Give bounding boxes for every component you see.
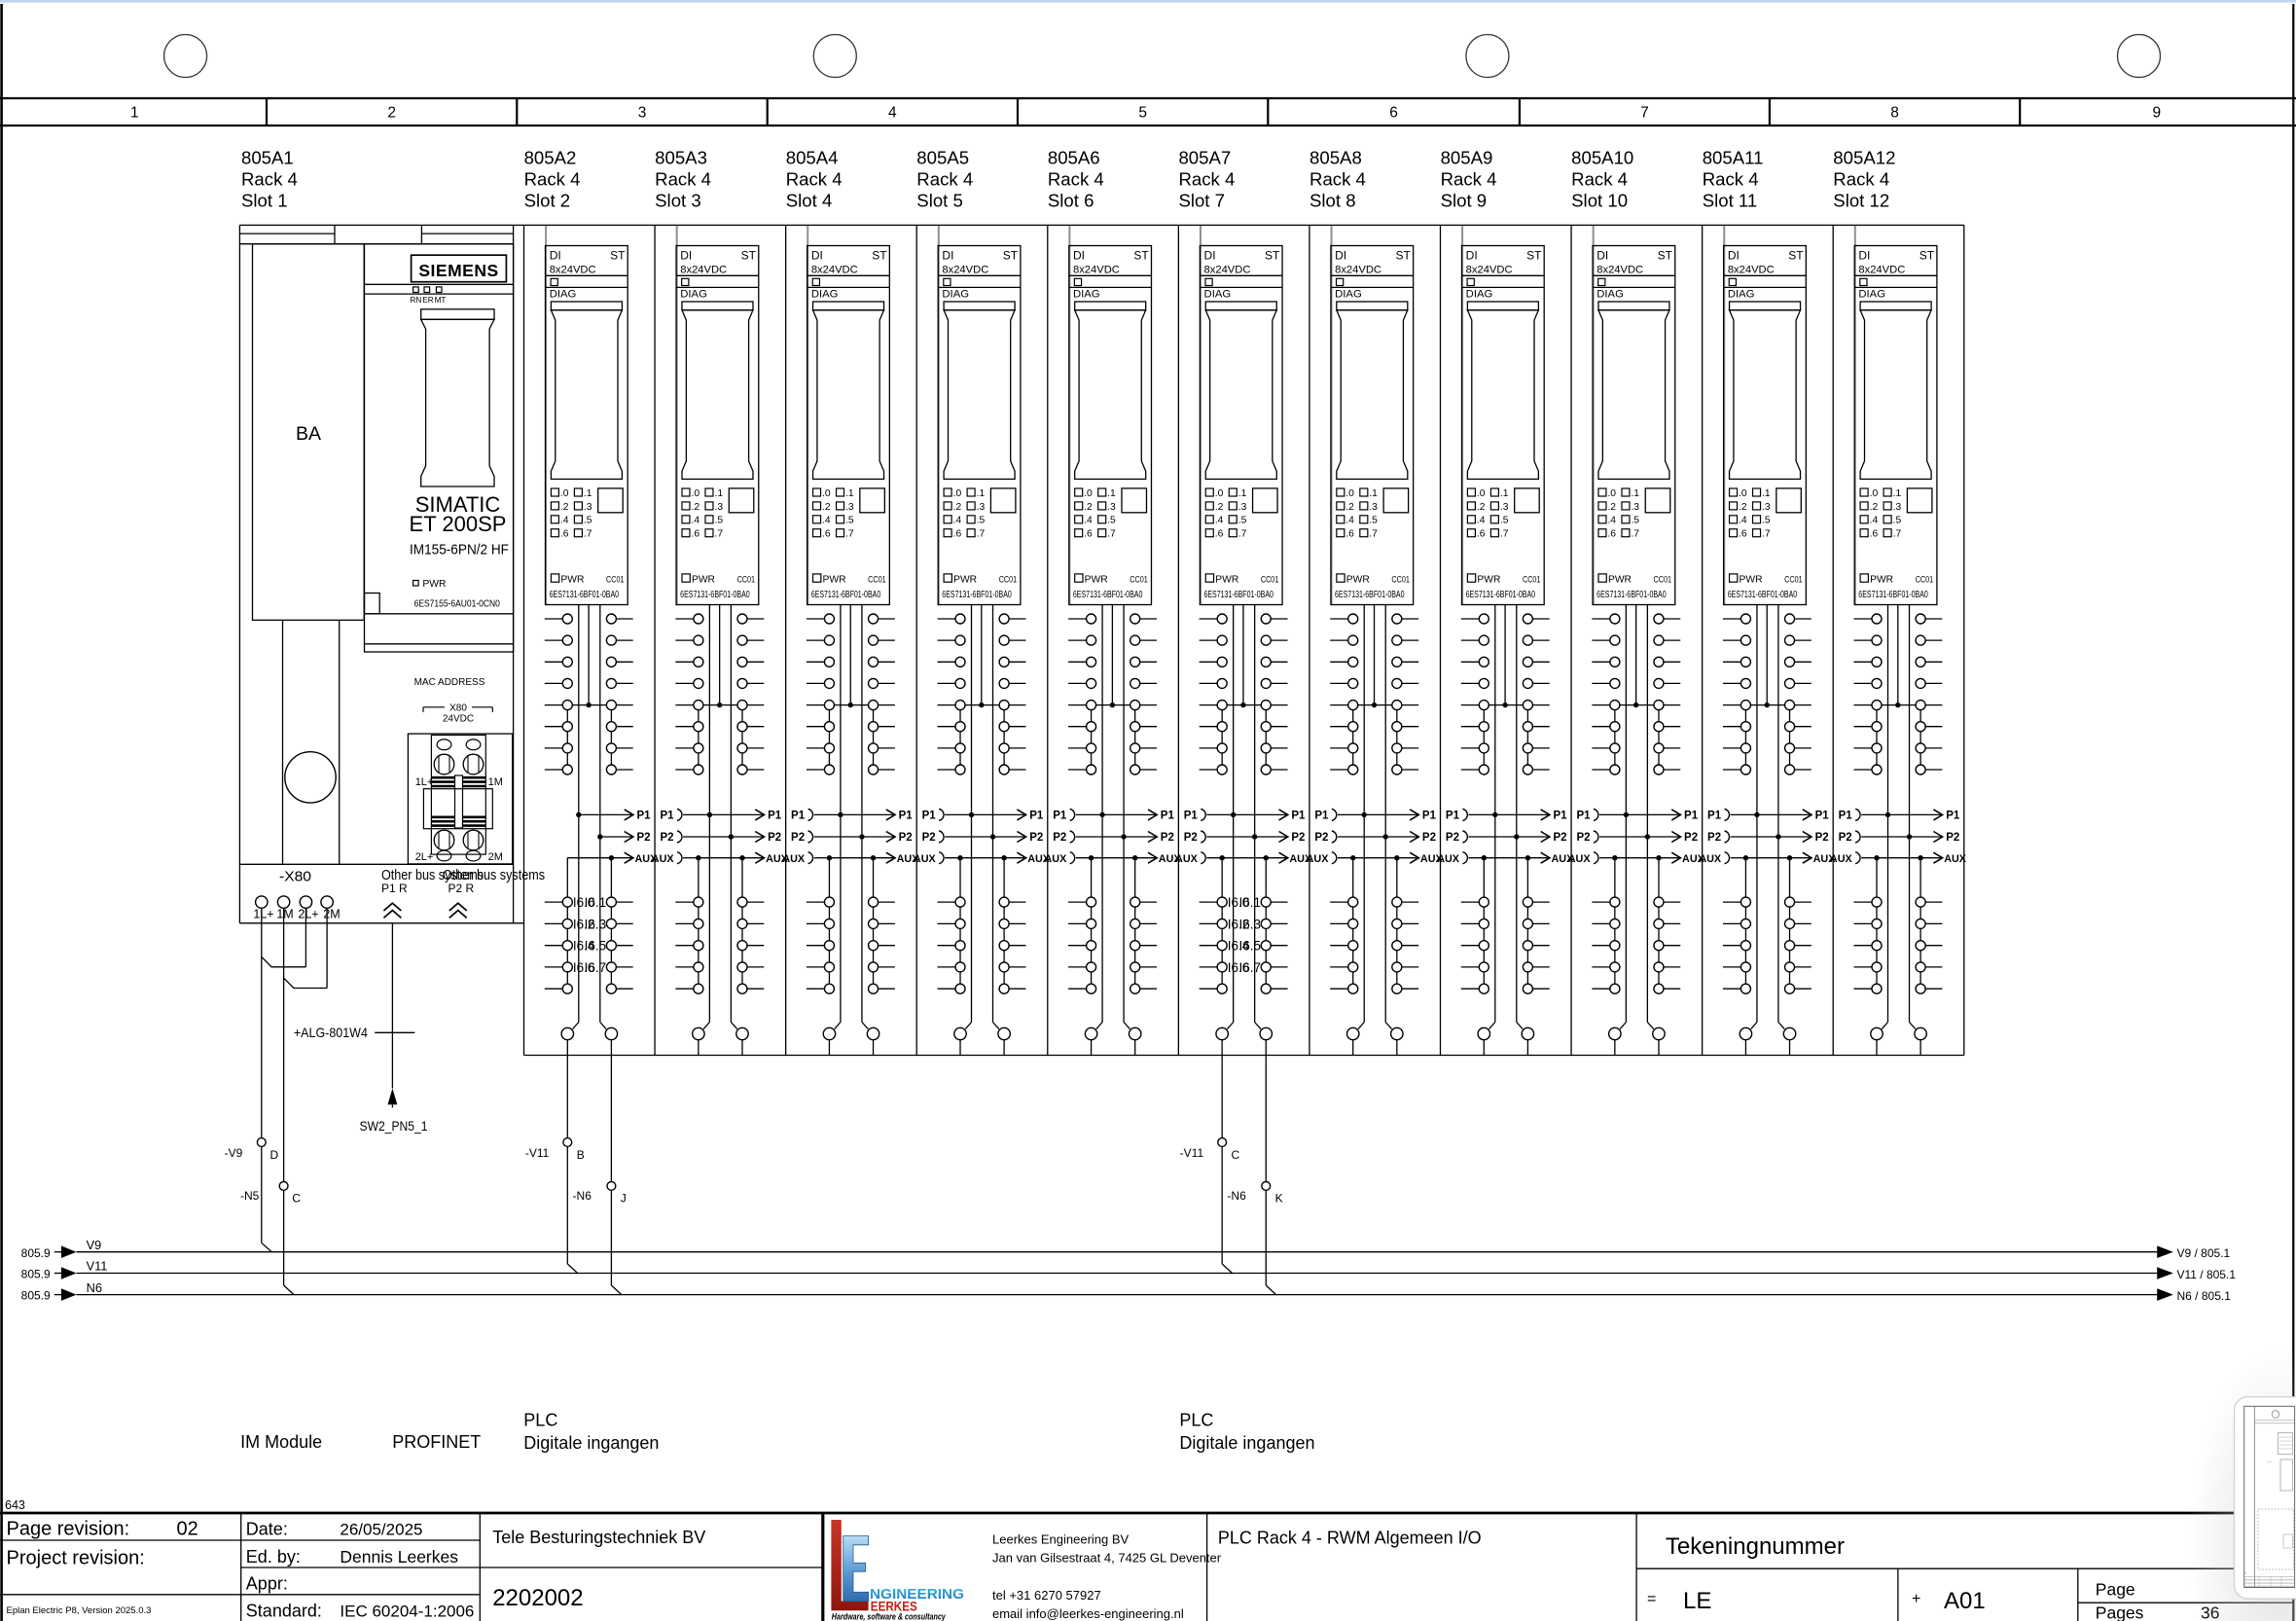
svg-text:PROFINET: PROFINET (392, 1432, 481, 1452)
svg-text:V11: V11 (87, 1259, 108, 1274)
svg-text:AUX: AUX (1699, 853, 1722, 865)
svg-text:PWR: PWR (422, 579, 446, 590)
svg-text:7: 7 (1640, 105, 1649, 122)
svg-text:P2: P2 (1314, 832, 1328, 844)
svg-text:P1: P1 (922, 810, 937, 822)
svg-text:24VDC: 24VDC (443, 714, 474, 725)
svg-text:Rack 4: Rack 4 (241, 169, 298, 190)
svg-text:Jan van Gilsestraat 4, 7425 GL: Jan van Gilsestraat 4, 7425 GL Deventer (992, 1551, 1222, 1566)
svg-text:Standard:: Standard: (246, 1602, 322, 1621)
svg-text:-V9: -V9 (225, 1146, 243, 1160)
svg-text:Slot 8: Slot 8 (1309, 191, 1356, 211)
svg-text:N6: N6 (87, 1280, 102, 1295)
svg-text:P1: P1 (791, 810, 806, 822)
svg-text:1: 1 (130, 105, 139, 122)
svg-text:P2: P2 (1446, 832, 1459, 844)
svg-text:I6.3: I6.3 (585, 917, 607, 931)
svg-text:C: C (1232, 1148, 1240, 1162)
svg-text:=: = (1647, 1591, 1656, 1607)
svg-text:Slot 5: Slot 5 (916, 191, 963, 211)
svg-text:+ALG-801W4: +ALG-801W4 (294, 1025, 368, 1040)
svg-text:P1: P1 (1053, 810, 1067, 822)
svg-text:+: + (1912, 1591, 1920, 1607)
svg-text:Pages: Pages (2096, 1603, 2144, 1621)
svg-text:I6.5: I6.5 (1238, 939, 1261, 954)
svg-text:Slot 4: Slot 4 (786, 191, 833, 211)
svg-text:I6.3: I6.3 (1238, 917, 1261, 931)
svg-text:P2: P2 (922, 832, 936, 844)
svg-text:P1 R: P1 R (381, 882, 408, 895)
svg-text:-N6: -N6 (573, 1189, 592, 1203)
svg-text:6ES7155-6AU01-0CN0: 6ES7155-6AU01-0CN0 (414, 598, 500, 610)
svg-text:RN: RN (411, 296, 422, 305)
svg-text:Rack 4: Rack 4 (655, 169, 711, 190)
svg-text:26/05/2025: 26/05/2025 (340, 1521, 422, 1539)
svg-text:Rack 4: Rack 4 (916, 169, 973, 190)
svg-text:Rack 4: Rack 4 (1178, 169, 1235, 190)
svg-text:805A6: 805A6 (1048, 148, 1100, 168)
svg-text:5: 5 (1138, 105, 1147, 122)
svg-text:P2: P2 (1576, 832, 1590, 844)
svg-text:Appr:: Appr: (246, 1574, 288, 1594)
svg-text:805A8: 805A8 (1309, 148, 1362, 168)
svg-text:P1: P1 (1314, 810, 1329, 822)
svg-text:P1: P1 (1707, 810, 1722, 822)
svg-text:Rack 4: Rack 4 (524, 169, 581, 190)
svg-text:Slot 11: Slot 11 (1703, 191, 1758, 211)
svg-text:PLC: PLC (523, 1411, 557, 1430)
svg-text:Slot 10: Slot 10 (1571, 191, 1628, 211)
svg-text:-N5: -N5 (240, 1189, 260, 1203)
svg-text:AUX: AUX (1307, 853, 1330, 865)
svg-text:Rack 4: Rack 4 (1833, 169, 1889, 190)
svg-text:6: 6 (1389, 105, 1398, 122)
svg-text:K: K (1275, 1191, 1283, 1205)
svg-text:P1: P1 (1576, 810, 1591, 822)
svg-text:A01: A01 (1944, 1588, 1986, 1614)
svg-text:805A1: 805A1 (241, 148, 294, 168)
svg-text:2M: 2M (488, 851, 503, 863)
svg-text:P1: P1 (1839, 810, 1853, 822)
svg-text:I6.7: I6.7 (585, 960, 607, 975)
svg-text:P2: P2 (660, 832, 673, 844)
svg-text:Slot 6: Slot 6 (1048, 191, 1094, 211)
svg-text:Ed. by:: Ed. by: (246, 1547, 301, 1567)
svg-text:B: B (577, 1148, 585, 1162)
svg-text:P1: P1 (1446, 810, 1460, 822)
svg-text:SW2_PN5_1: SW2_PN5_1 (360, 1118, 428, 1134)
svg-text:-N6: -N6 (1227, 1189, 1246, 1203)
svg-text:9: 9 (2152, 105, 2161, 122)
svg-text:805.9: 805.9 (21, 1268, 51, 1281)
svg-text:AUX: AUX (914, 853, 937, 865)
svg-text:PLC: PLC (1179, 1411, 1213, 1430)
svg-text:AUX: AUX (1437, 853, 1460, 865)
svg-text:805A5: 805A5 (916, 148, 969, 168)
svg-text:805A11: 805A11 (1703, 148, 1764, 168)
svg-text:-V11: -V11 (525, 1146, 550, 1160)
svg-text:Rack 4: Rack 4 (1571, 169, 1628, 190)
svg-text:-X80: -X80 (279, 869, 311, 885)
svg-text:AUX: AUX (1830, 853, 1853, 865)
svg-text:02: 02 (177, 1519, 198, 1540)
svg-text:V11 / 805.1: V11 / 805.1 (2177, 1268, 2237, 1281)
svg-text:805.9: 805.9 (21, 1246, 51, 1260)
svg-text:805A3: 805A3 (655, 148, 707, 168)
svg-text:P1: P1 (1184, 810, 1199, 822)
svg-text:Slot 7: Slot 7 (1178, 191, 1225, 211)
svg-text:IM155-6PN/2 HF: IM155-6PN/2 HF (410, 542, 509, 558)
svg-text:Hardware, software & consultan: Hardware, software & consultancy (832, 1612, 947, 1621)
svg-text:Rack 4: Rack 4 (1703, 169, 1759, 190)
svg-text:P2 R: P2 R (448, 882, 475, 895)
svg-text:2L+: 2L+ (298, 908, 318, 921)
svg-text:Tele Besturingstechniek BV: Tele Besturingstechniek BV (492, 1528, 705, 1547)
svg-text:N6 / 805.1: N6 / 805.1 (2177, 1289, 2232, 1303)
svg-text:I6.1: I6.1 (585, 895, 607, 910)
svg-text:PLC Rack 4 - RWM Algemeen I/O: PLC Rack 4 - RWM Algemeen I/O (1218, 1529, 1482, 1548)
svg-text:Slot 2: Slot 2 (524, 191, 571, 211)
svg-text:Rack 4: Rack 4 (786, 169, 843, 190)
svg-text:2202002: 2202002 (492, 1585, 583, 1611)
svg-text:X80: X80 (449, 703, 467, 714)
svg-text:I6.5: I6.5 (585, 939, 607, 954)
svg-text:Digitale ingangen: Digitale ingangen (523, 1433, 659, 1453)
svg-text:P2: P2 (1184, 832, 1198, 844)
svg-text:LE: LE (1683, 1588, 1711, 1614)
svg-text:P2: P2 (1707, 832, 1721, 844)
svg-text:Slot 1: Slot 1 (241, 191, 288, 211)
svg-text:805A10: 805A10 (1571, 148, 1633, 168)
svg-text:tel +31 6270 57927: tel +31 6270 57927 (992, 1588, 1101, 1603)
svg-text:C: C (292, 1191, 301, 1205)
svg-text:SIEMENS: SIEMENS (418, 261, 498, 280)
svg-text:805A9: 805A9 (1441, 148, 1493, 168)
svg-text:Tekeningnummer: Tekeningnummer (1666, 1533, 1845, 1560)
svg-text:Page: Page (2096, 1580, 2135, 1600)
svg-text:AUX: AUX (1044, 853, 1067, 865)
svg-text:805A7: 805A7 (1178, 148, 1231, 168)
svg-text:Slot 12: Slot 12 (1833, 191, 1889, 211)
svg-text:—: — (2267, 1459, 2272, 1465)
svg-text:AUX: AUX (1175, 853, 1199, 865)
svg-text:Rack 4: Rack 4 (1309, 169, 1366, 190)
svg-text:AUX: AUX (1568, 853, 1592, 865)
svg-text:1M: 1M (488, 776, 503, 788)
svg-text:ER: ER (422, 296, 433, 305)
svg-text:IEC 60204-1:2006: IEC 60204-1:2006 (340, 1603, 474, 1621)
svg-text:Digitale ingangen: Digitale ingangen (1179, 1433, 1314, 1453)
svg-text:Eplan Electric P8, Version 202: Eplan Electric P8, Version 2025.0.3 (7, 1605, 152, 1616)
svg-text:805A2: 805A2 (524, 148, 577, 168)
svg-text:2M: 2M (323, 908, 340, 921)
svg-text:MT: MT (435, 296, 447, 305)
svg-text:AUX: AUX (782, 853, 806, 865)
svg-text:2: 2 (387, 105, 396, 122)
svg-text:1M: 1M (276, 908, 293, 921)
svg-text:Date:: Date: (246, 1520, 288, 1539)
svg-text:805A4: 805A4 (786, 148, 839, 168)
svg-text:P1: P1 (660, 810, 674, 822)
svg-text:P2: P2 (1053, 832, 1066, 844)
svg-text:Slot 9: Slot 9 (1441, 191, 1488, 211)
svg-text:BA: BA (296, 423, 321, 445)
svg-text:1L+: 1L+ (415, 776, 434, 788)
svg-text:P2: P2 (1839, 832, 1852, 844)
svg-text:ET 200SP: ET 200SP (410, 512, 507, 536)
svg-text:Project revision:: Project revision: (7, 1548, 145, 1569)
svg-text:-V11: -V11 (1180, 1146, 1204, 1160)
svg-text:3: 3 (638, 105, 647, 122)
svg-text:MAC ADDRESS: MAC ADDRESS (414, 677, 485, 688)
svg-text:805A12: 805A12 (1833, 148, 1895, 168)
svg-text:V9 / 805.1: V9 / 805.1 (2177, 1246, 2231, 1260)
svg-text:805.9: 805.9 (21, 1289, 51, 1303)
svg-text:Rack 4: Rack 4 (1441, 169, 1497, 190)
svg-text:8: 8 (1890, 105, 1899, 122)
svg-text:Slot 3: Slot 3 (655, 191, 701, 211)
svg-text:4: 4 (888, 105, 897, 122)
svg-text:2L+: 2L+ (415, 851, 434, 863)
svg-text:V9: V9 (87, 1238, 102, 1252)
svg-text:IM Module: IM Module (240, 1432, 322, 1452)
svg-text:I6.7: I6.7 (1238, 960, 1261, 975)
svg-text:I6.1: I6.1 (1238, 895, 1261, 910)
svg-text:P2: P2 (791, 832, 805, 844)
svg-text:J: J (621, 1191, 627, 1205)
svg-text:AUX: AUX (652, 853, 675, 865)
svg-text:643: 643 (5, 1498, 25, 1512)
svg-text:Dennis Leerkes: Dennis Leerkes (340, 1547, 458, 1567)
svg-text:email info@leerkes-engineering: email info@leerkes-engineering.nl (992, 1606, 1184, 1621)
svg-text:Leerkes Engineering BV: Leerkes Engineering BV (992, 1532, 1130, 1547)
svg-text:Rack 4: Rack 4 (1048, 169, 1104, 190)
svg-text:Page revision:: Page revision: (7, 1519, 130, 1540)
svg-text:D: D (270, 1148, 279, 1162)
svg-text:1L+: 1L+ (253, 908, 273, 921)
